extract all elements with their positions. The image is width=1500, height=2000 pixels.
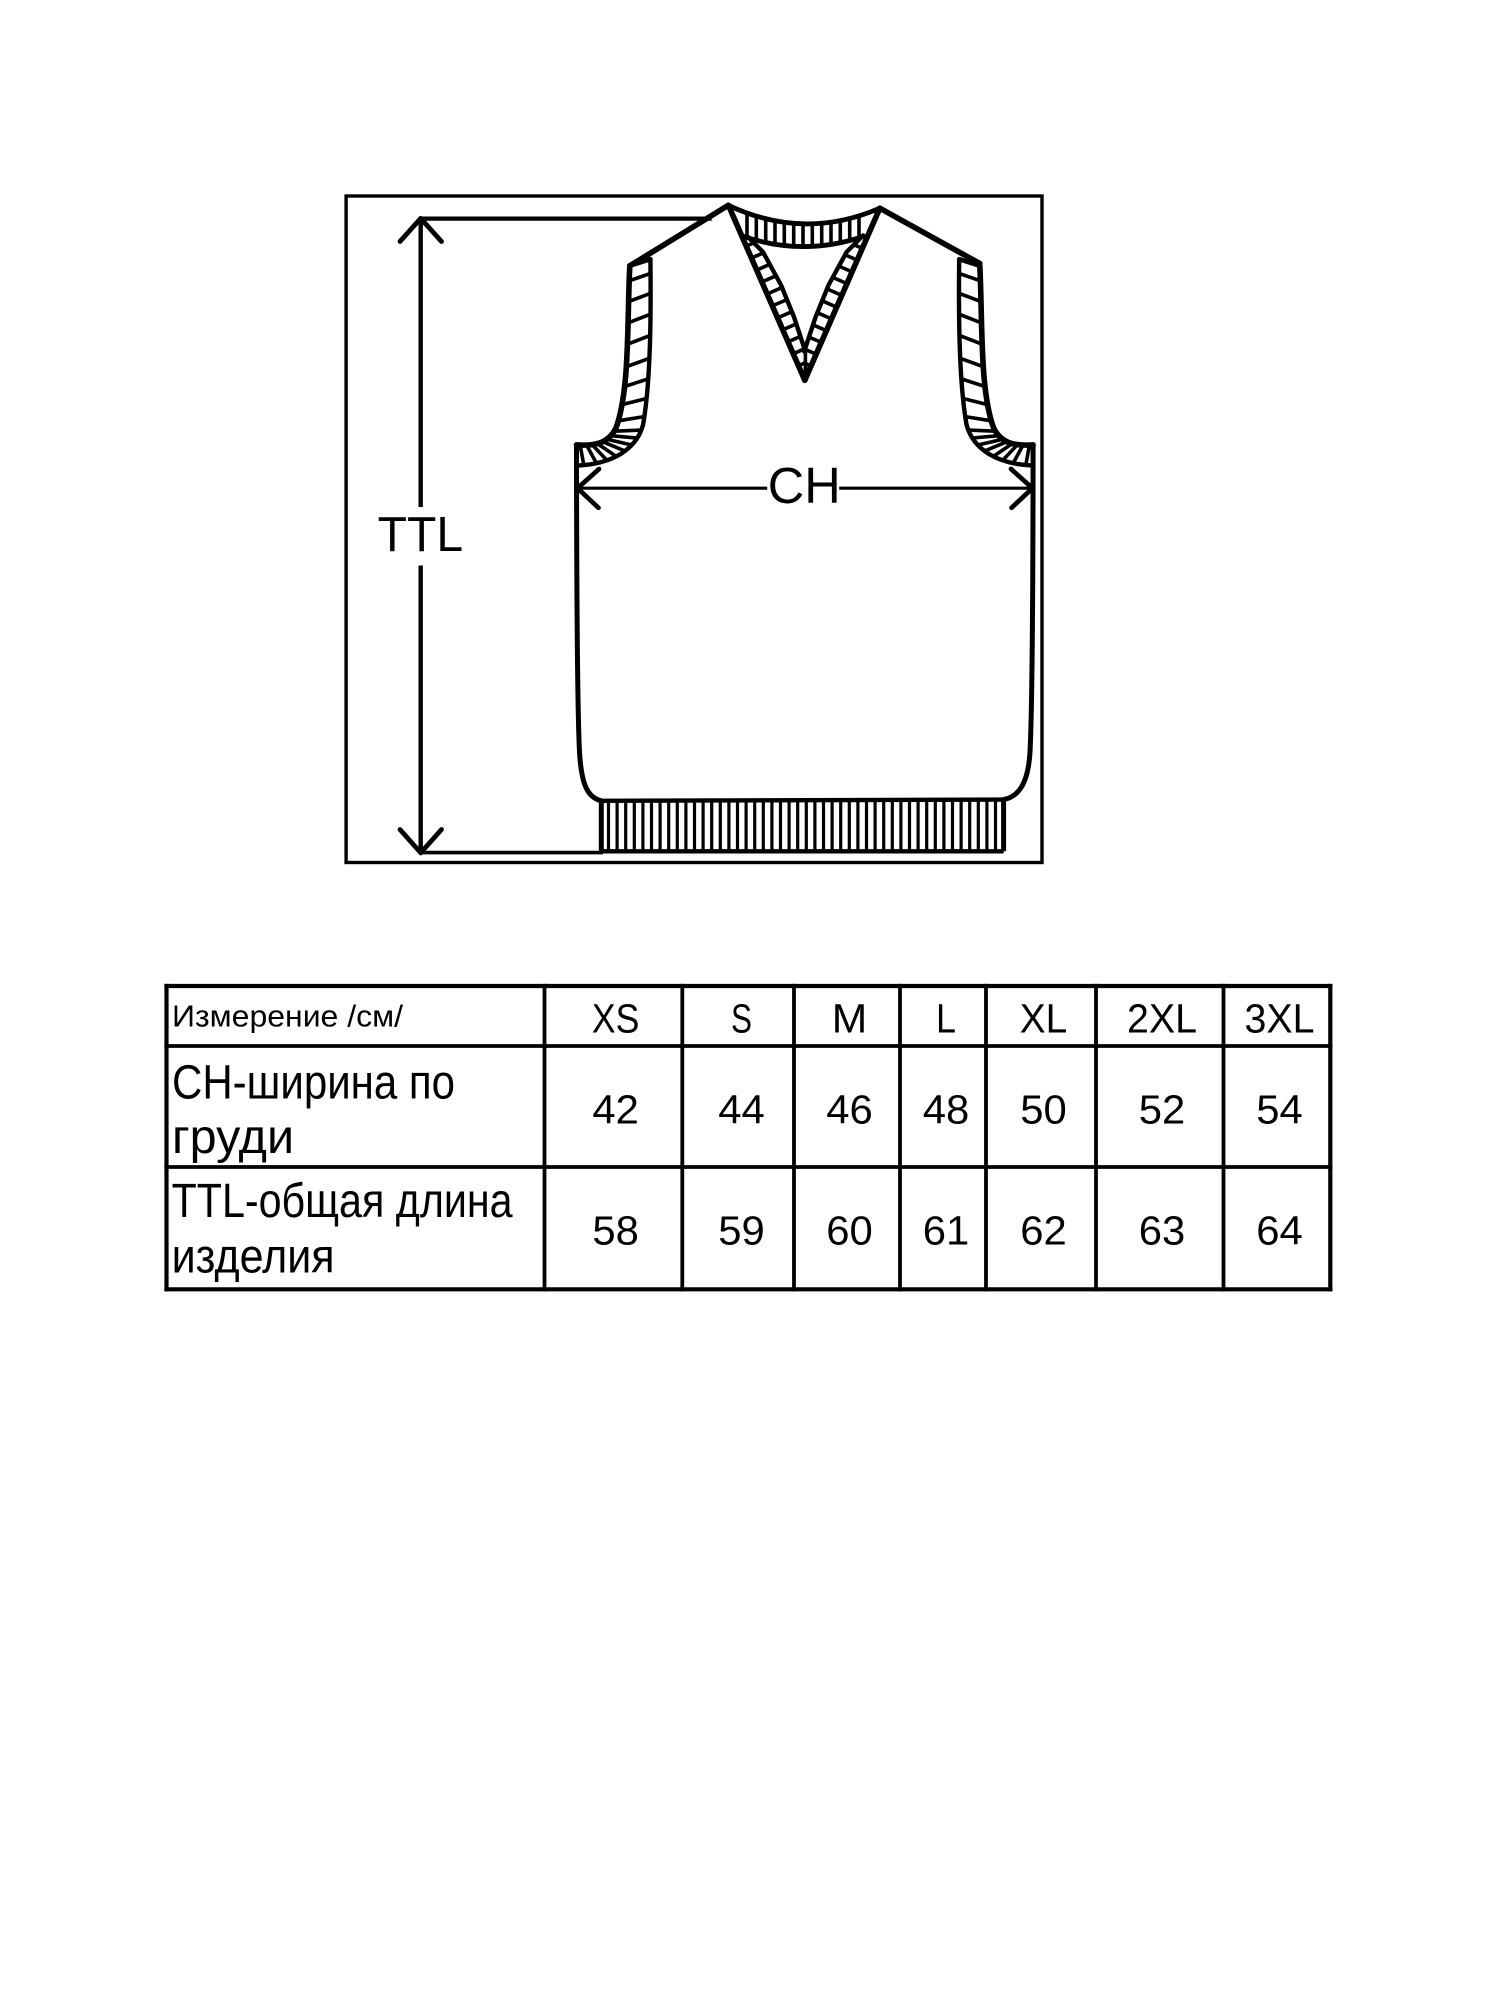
- svg-text:59: 59: [718, 1207, 765, 1253]
- svg-text:CH-ширина по: CH-ширина по: [172, 1057, 455, 1110]
- svg-text:54: 54: [1256, 1087, 1303, 1133]
- svg-text:TTL-общая длина: TTL-общая длина: [172, 1175, 513, 1228]
- svg-text:60: 60: [826, 1207, 873, 1253]
- svg-text:48: 48: [923, 1087, 970, 1133]
- svg-text:64: 64: [1256, 1207, 1303, 1253]
- svg-text:50: 50: [1020, 1087, 1067, 1133]
- svg-text:62: 62: [1020, 1207, 1067, 1253]
- svg-text:TTL: TTL: [378, 507, 464, 562]
- svg-text:изделия: изделия: [172, 1231, 335, 1284]
- svg-text:2XL: 2XL: [1127, 996, 1197, 1042]
- svg-text:44: 44: [718, 1087, 765, 1133]
- svg-text:58: 58: [592, 1207, 639, 1253]
- svg-text:61: 61: [923, 1207, 970, 1253]
- svg-text:42: 42: [592, 1087, 639, 1133]
- svg-text:L: L: [936, 996, 956, 1042]
- svg-text:CH: CH: [768, 457, 841, 514]
- svg-text:XL: XL: [1020, 996, 1068, 1042]
- svg-text:XS: XS: [592, 996, 640, 1042]
- svg-text:63: 63: [1139, 1207, 1186, 1253]
- svg-text:3XL: 3XL: [1245, 996, 1315, 1042]
- svg-text:груди: груди: [172, 1111, 294, 1164]
- svg-text:46: 46: [826, 1087, 873, 1133]
- svg-text:S: S: [731, 996, 752, 1042]
- svg-text:52: 52: [1139, 1087, 1186, 1133]
- svg-text:M: M: [832, 996, 868, 1042]
- svg-text:Измерение /см/: Измерение /см/: [172, 1000, 404, 1034]
